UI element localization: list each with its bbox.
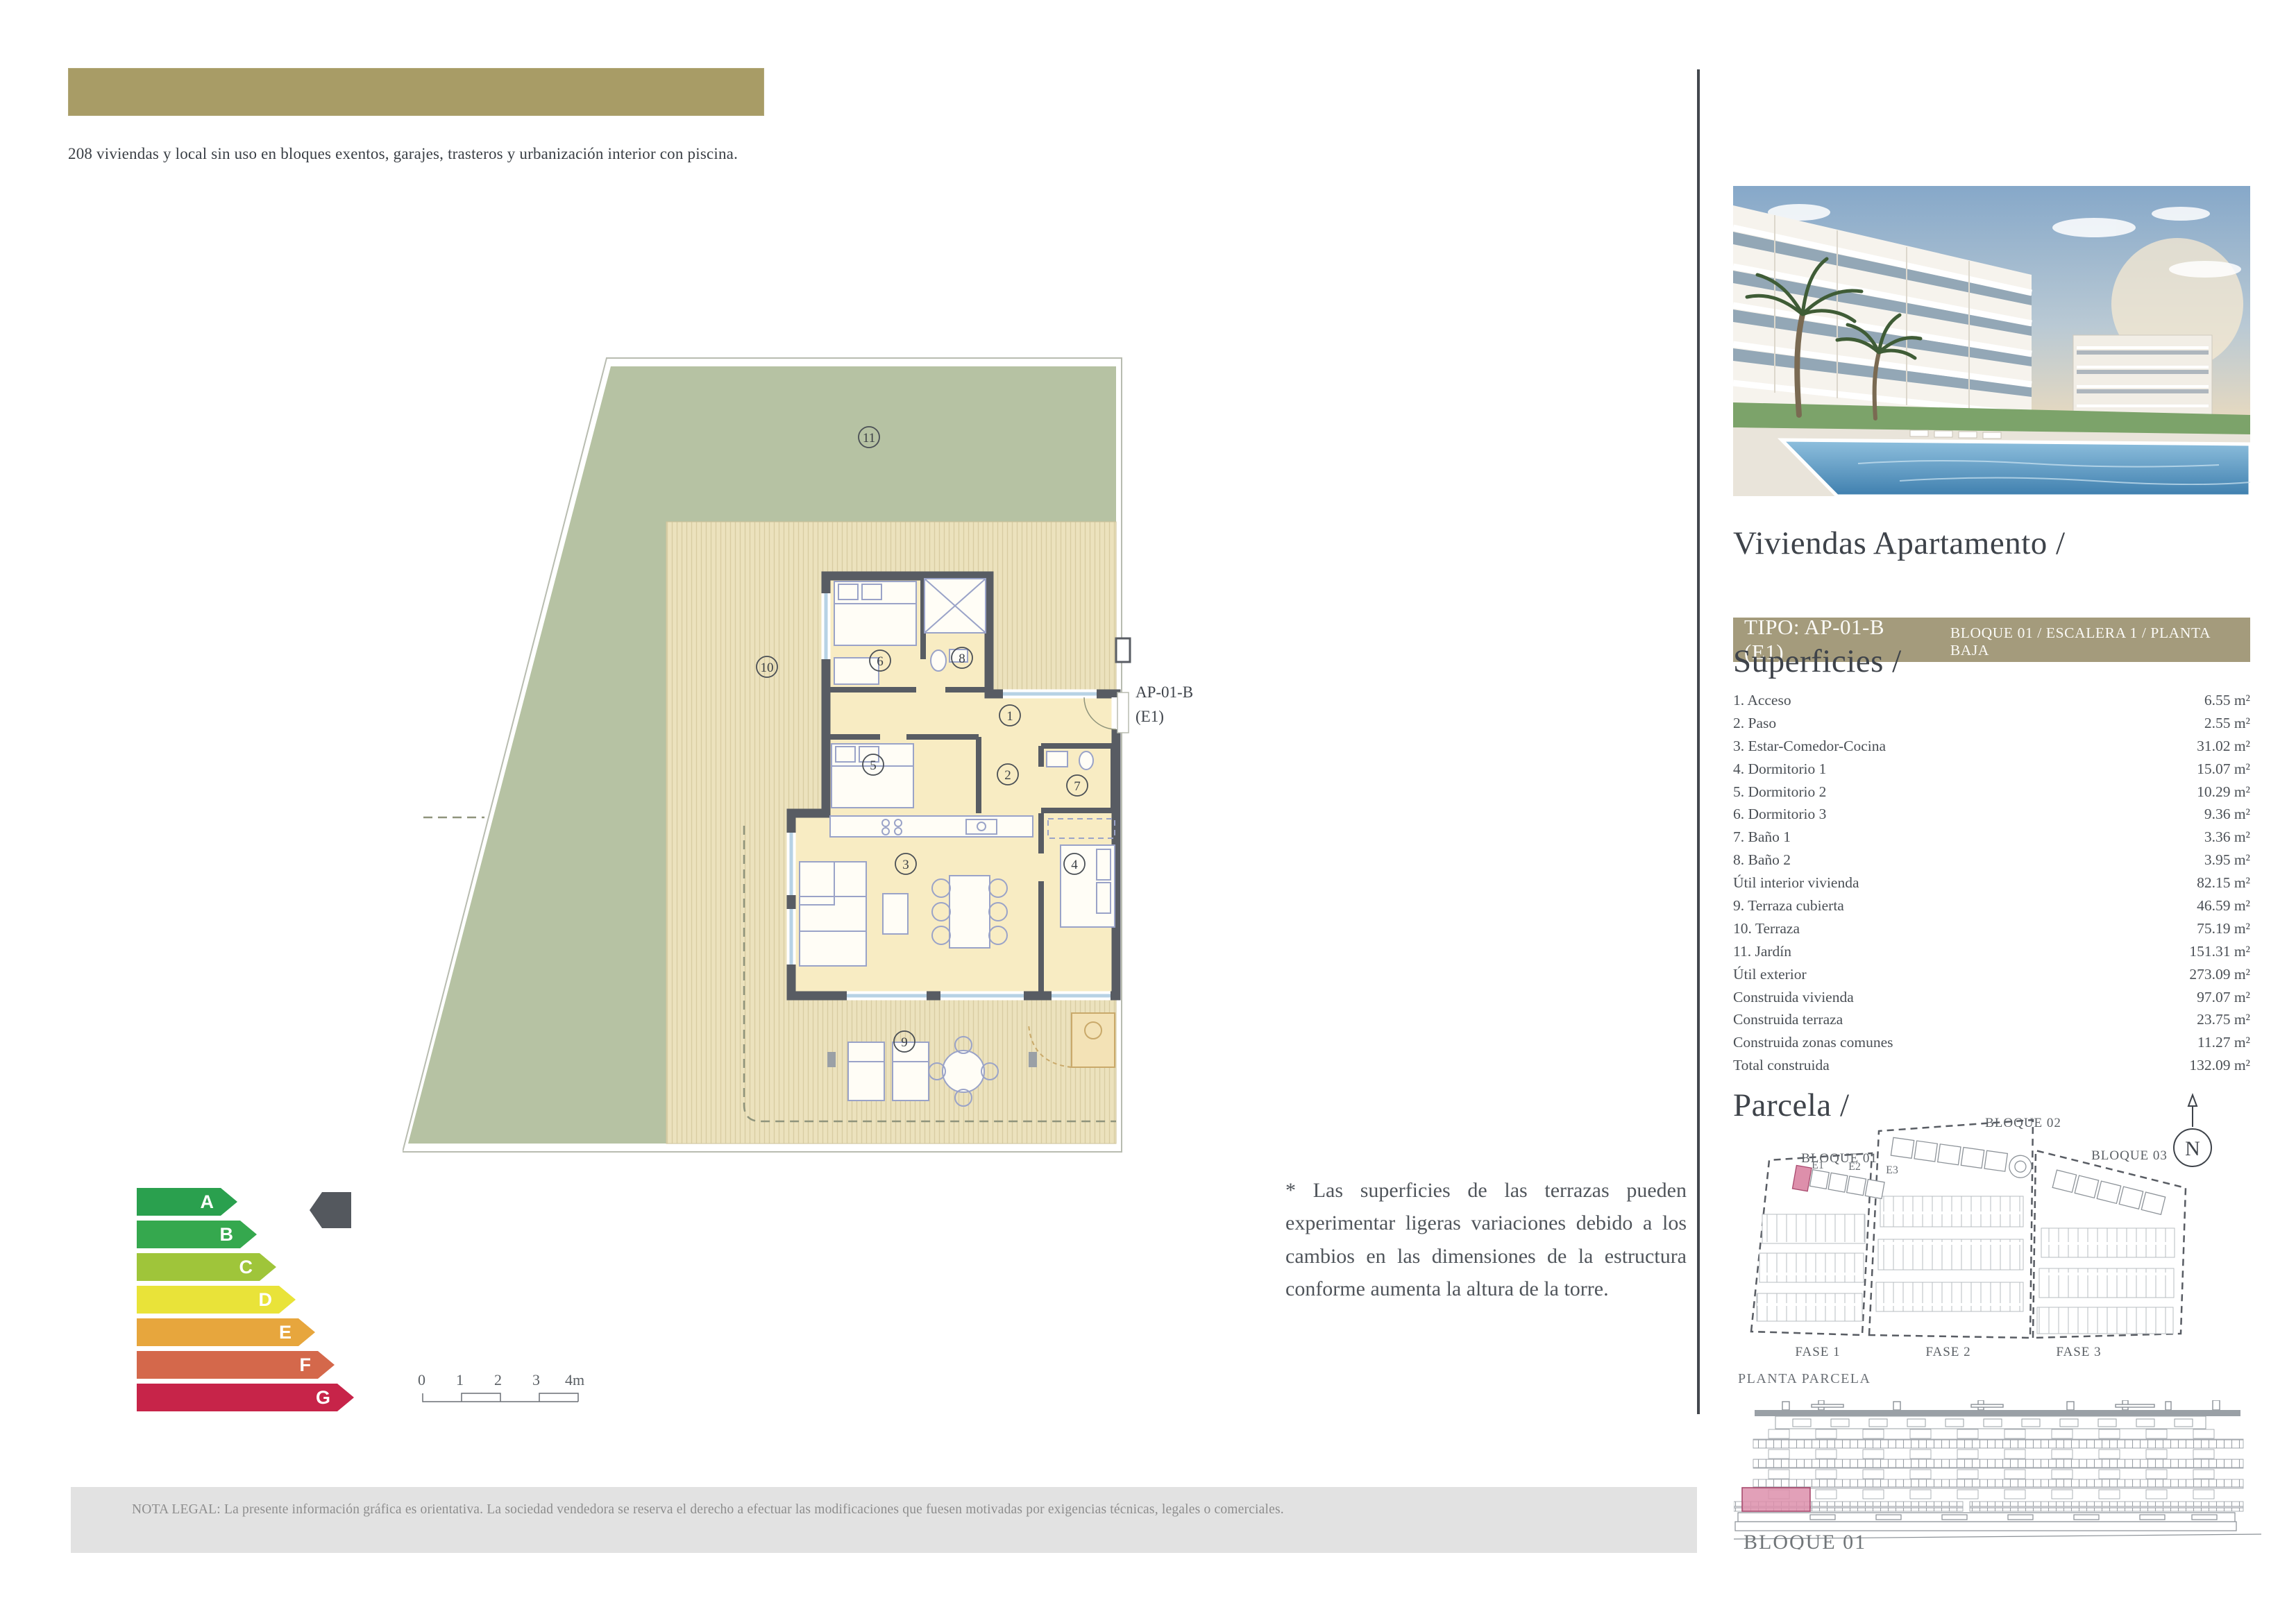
superficie-value: 2.55 m² xyxy=(2204,715,2250,732)
superficie-value: 11.27 m² xyxy=(2197,1034,2250,1051)
energy-grade-letter: G xyxy=(316,1387,330,1409)
energy-grade-letter: F xyxy=(300,1354,312,1376)
terrace-note: * Las superficies de las terrazas pueden… xyxy=(1285,1174,1687,1306)
room-label-2: 2 xyxy=(1004,768,1011,783)
room-label-8: 8 xyxy=(959,652,965,666)
fase-1-label: FASE 1 xyxy=(1795,1345,1840,1359)
floor-plan-drawing: 1 2 3 4 5 6 7 8 9 10 11 AP-01-B (E1) xyxy=(403,347,1263,1180)
superficie-row: 3. Estar-Comedor-Cocina31.02 m² xyxy=(1733,735,2250,758)
superficie-value: 3.95 m² xyxy=(2204,851,2250,869)
superficie-value: 75.19 m² xyxy=(2197,920,2250,937)
superficie-label: Construida terraza xyxy=(1733,1011,1843,1028)
energy-grade-C: C xyxy=(137,1253,276,1281)
energy-grade-E: E xyxy=(137,1318,315,1346)
energy-grade-letter: B xyxy=(220,1224,234,1246)
parking-rows xyxy=(1757,1196,2175,1334)
room-label-7: 7 xyxy=(1074,779,1081,794)
superficie-row: 4. Dormitorio 115.07 m² xyxy=(1733,758,2250,781)
superficie-value: 9.36 m² xyxy=(2204,806,2250,823)
superficie-value: 82.15 m² xyxy=(2197,874,2250,892)
sidebar-title: Viviendas Apartamento / xyxy=(1733,525,2250,562)
site-plan: BLOQUE 02 BLOQUE 01 BLOQUE 03 FASE 1 FAS… xyxy=(1733,1091,2250,1368)
room-label-10: 10 xyxy=(761,661,774,675)
scale-bar xyxy=(422,1389,580,1404)
brochure-page: { "header": { "bar_color": "#a89c66", "d… xyxy=(0,0,2296,1623)
superficie-label: 1. Acceso xyxy=(1733,692,1791,709)
superficie-label: Útil exterior xyxy=(1733,966,1807,983)
superficie-value: 151.31 m² xyxy=(2189,943,2250,960)
chimneys xyxy=(1782,1400,2220,1410)
elevation-drawing xyxy=(1734,1400,2284,1549)
planta-parcela-caption: PLANTA PARCELA xyxy=(1738,1371,1871,1387)
room-label-3: 3 xyxy=(902,858,909,872)
superficie-row: Total construida132.09 m² xyxy=(1733,1054,2250,1077)
superficie-label: 3. Estar-Comedor-Cocina xyxy=(1733,738,1886,755)
project-description: 208 viviendas y local sin uso en bloques… xyxy=(68,142,770,167)
scale-label: 3 xyxy=(532,1371,540,1389)
superficie-row: 10. Terraza75.19 m² xyxy=(1733,917,2250,940)
e1-label: E1 xyxy=(1812,1159,1824,1171)
superficie-row: 1. Acceso6.55 m² xyxy=(1733,689,2250,712)
superficie-value: 23.75 m² xyxy=(2197,1011,2250,1028)
building-photo xyxy=(1733,186,2250,496)
superficie-label: 4. Dormitorio 1 xyxy=(1733,760,1826,778)
superficie-value: 97.07 m² xyxy=(2197,989,2250,1006)
roof-slab xyxy=(1755,1410,2240,1416)
superficie-value: 6.55 m² xyxy=(2204,692,2250,709)
legal-note-bar xyxy=(71,1487,1697,1553)
energy-grade-G: G xyxy=(137,1384,354,1411)
highlighted-unit-elevation xyxy=(1742,1488,1810,1511)
energy-rating-chart: ABCDEFG xyxy=(137,1188,428,1416)
superficie-row: 7. Baño 13.36 m² xyxy=(1733,826,2250,849)
far-building xyxy=(2073,335,2212,415)
compass-icon: N xyxy=(2174,1095,2211,1166)
superficie-label: 9. Terraza cubierta xyxy=(1733,897,1844,915)
elevation-caption-text: BLOQUE 01 xyxy=(1744,1531,1866,1549)
superficie-value: 15.07 m² xyxy=(2197,760,2250,778)
room-label-11: 11 xyxy=(863,431,875,445)
scale-label: 0 xyxy=(418,1371,425,1389)
room-label-1: 1 xyxy=(1006,709,1013,724)
energy-grade-letter: C xyxy=(239,1257,253,1278)
superficie-label: Total construida xyxy=(1733,1057,1830,1074)
attic-floor xyxy=(1775,1416,2206,1429)
energy-grade-B: B xyxy=(137,1221,257,1248)
energy-grade-A: A xyxy=(137,1188,237,1216)
unit-code-label: AP-01-B xyxy=(1136,683,1193,701)
superficie-value: 46.59 m² xyxy=(2197,897,2250,915)
superficie-row: Construida zonas comunes11.27 m² xyxy=(1733,1031,2250,1054)
superficie-label: 11. Jardín xyxy=(1733,943,1791,960)
room-label-9: 9 xyxy=(901,1035,908,1050)
bloque-03-label: BLOQUE 03 xyxy=(2091,1148,2168,1163)
superficie-row: 5. Dormitorio 210.29 m² xyxy=(1733,781,2250,804)
fase-2-label: FASE 2 xyxy=(1925,1345,1970,1359)
superficie-label: 7. Baño 1 xyxy=(1733,829,1791,846)
superficie-row: Construida vivienda97.07 m² xyxy=(1733,986,2250,1009)
superficie-row: 2. Paso2.55 m² xyxy=(1733,712,2250,735)
superficie-value: 31.02 m² xyxy=(2197,738,2250,755)
pool xyxy=(1782,440,2250,496)
e2-label: E2 xyxy=(1848,1161,1861,1173)
superficie-row: 11. Jardín151.31 m² xyxy=(1733,940,2250,963)
energy-grade-letter: D xyxy=(259,1289,273,1311)
superficie-row: Útil exterior273.09 m² xyxy=(1733,963,2250,986)
scale-bar-labels: 01234m xyxy=(414,1371,589,1388)
compass-north-label: N xyxy=(2185,1137,2200,1160)
scale-label: 1 xyxy=(456,1371,464,1389)
header-bar xyxy=(68,68,764,116)
superficie-label: 5. Dormitorio 2 xyxy=(1733,783,1826,801)
superficie-label: 8. Baño 2 xyxy=(1733,851,1791,869)
superficie-label: 10. Terraza xyxy=(1733,920,1800,937)
superficie-row: Útil interior vivienda82.15 m² xyxy=(1733,872,2250,894)
unit-stair-label: (E1) xyxy=(1136,708,1164,725)
energy-grade-letter: A xyxy=(201,1191,214,1213)
bloque-02-label: BLOQUE 02 xyxy=(1985,1116,2061,1130)
elevation-caption: BLOQUE 01 xyxy=(1744,1531,1924,1549)
highlighted-unit-siteplan xyxy=(1792,1165,1812,1191)
floor-plan: 1 2 3 4 5 6 7 8 9 10 11 AP-01-B (E1) xyxy=(403,347,1263,1180)
superficie-label: Construida zonas comunes xyxy=(1733,1034,1893,1051)
superficie-label: Construida vivienda xyxy=(1733,989,1854,1006)
superficie-label: Útil interior vivienda xyxy=(1733,874,1859,892)
utility-box xyxy=(1116,638,1130,662)
superficie-label: 6. Dormitorio 3 xyxy=(1733,806,1826,823)
fase-3-label: FASE 3 xyxy=(2056,1345,2101,1359)
superficie-label: 2. Paso xyxy=(1733,715,1776,732)
entrance-step xyxy=(1117,692,1129,733)
superficies-heading: Superficies / xyxy=(1733,643,2250,680)
column-divider xyxy=(1697,69,1700,1414)
energy-grade-D: D xyxy=(137,1286,296,1314)
superficie-row: Construida terraza23.75 m² xyxy=(1733,1008,2250,1031)
room-label-5: 5 xyxy=(870,758,877,773)
legal-note-text: NOTA LEGAL: La presente información gráf… xyxy=(132,1502,1624,1518)
superficies-list: 1. Acceso6.55 m²2. Paso2.55 m²3. Estar-C… xyxy=(1733,689,2250,1077)
superficie-row: 9. Terraza cubierta46.59 m² xyxy=(1733,894,2250,917)
superficie-row: 8. Baño 23.95 m² xyxy=(1733,849,2250,872)
superficie-value: 132.09 m² xyxy=(2189,1057,2250,1074)
superficie-value: 3.36 m² xyxy=(2204,829,2250,846)
scale-label: 2 xyxy=(494,1371,502,1389)
superficie-value: 273.09 m² xyxy=(2189,966,2250,983)
room-label-6: 6 xyxy=(877,654,884,669)
room-label-4: 4 xyxy=(1071,858,1078,872)
scale-label: 4m xyxy=(565,1371,584,1389)
superficie-row: 6. Dormitorio 39.36 m² xyxy=(1733,803,2250,826)
energy-grade-F: F xyxy=(137,1351,335,1379)
superficie-value: 10.29 m² xyxy=(2197,783,2250,801)
energy-grade-letter: E xyxy=(279,1322,292,1343)
e3-label: E3 xyxy=(1886,1164,1898,1176)
